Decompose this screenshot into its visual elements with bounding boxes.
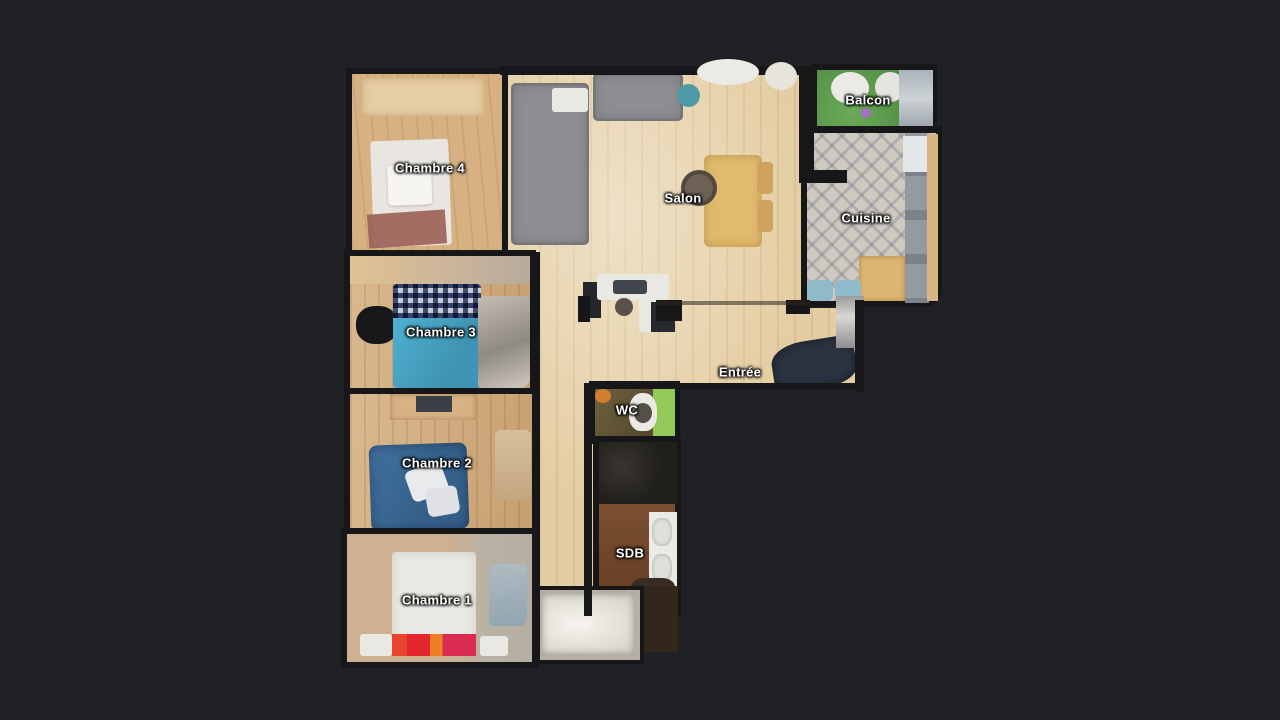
kitchen-counter	[927, 134, 938, 301]
room-label-balcon: Balcon	[845, 94, 890, 107]
lounge-chair	[765, 62, 797, 90]
room-label-chambre-1: Chambre 1	[402, 594, 472, 607]
fridge	[903, 136, 927, 172]
clutter	[489, 564, 527, 626]
bathroom-dark-corner	[644, 586, 678, 652]
monitor	[416, 396, 452, 412]
wall	[799, 170, 847, 183]
room-label-entree: Entrée	[719, 366, 761, 379]
wall	[534, 252, 540, 665]
floorplan-viewer: Chambre 4 Salon Balcon Cuisine Chambre 3…	[0, 0, 1280, 720]
nightstand	[360, 634, 392, 656]
shower-dark-tile	[599, 442, 677, 504]
desk-chair	[615, 298, 633, 316]
flower	[861, 108, 871, 118]
pillow	[424, 485, 460, 518]
room-label-sdb: SDB	[616, 547, 644, 560]
wall	[589, 383, 864, 389]
desk-monitor	[613, 280, 647, 294]
wall	[799, 66, 814, 180]
coffee-table	[552, 88, 588, 112]
wall-threshold	[656, 301, 810, 305]
balcony-equipment	[899, 70, 933, 128]
room-label-wc: WC	[616, 404, 638, 417]
bar-stool	[807, 280, 833, 301]
room-label-chambre-4: Chambre 4	[395, 162, 465, 175]
basket	[595, 389, 611, 403]
wardrobe	[362, 78, 484, 116]
pouf	[677, 84, 700, 107]
kitchen-island	[859, 256, 905, 301]
room-chambre-3[interactable]	[344, 250, 536, 394]
wall	[855, 300, 864, 392]
clutter	[495, 430, 531, 500]
red-pillows	[392, 634, 476, 656]
rug	[367, 209, 447, 248]
plaid-blanket	[393, 284, 481, 318]
lounge-chair	[697, 59, 759, 85]
room-label-cuisine: Cuisine	[841, 212, 890, 225]
sink	[652, 518, 672, 546]
room-label-salon: Salon	[665, 192, 702, 205]
shelf-clutter	[350, 256, 530, 284]
nightstand	[480, 636, 508, 656]
desk	[390, 394, 476, 420]
dining-chair	[757, 162, 773, 194]
room-label-chambre-3: Chambre 3	[406, 326, 476, 339]
clutter	[478, 296, 530, 388]
dining-chair	[757, 200, 773, 232]
sofa-chaise	[593, 73, 683, 121]
dark-object	[356, 306, 398, 344]
wall	[584, 383, 592, 616]
dining-table	[704, 155, 762, 247]
wall	[811, 126, 937, 133]
room-label-chambre-2: Chambre 2	[402, 457, 472, 470]
wall-post	[578, 296, 590, 322]
